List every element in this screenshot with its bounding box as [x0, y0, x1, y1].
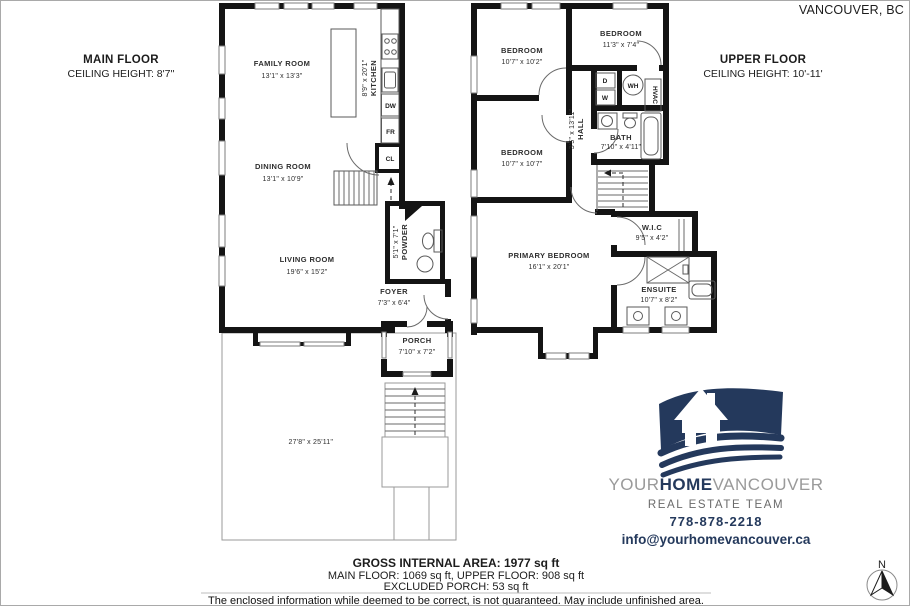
- bedroom2-label: BEDROOM: [600, 29, 642, 38]
- powder-fixtures: [417, 230, 442, 272]
- porch-door-arc: [407, 307, 427, 327]
- upper-floor-title: UPPER FLOOR: [720, 54, 807, 66]
- brand-tagline: REAL ESTATE TEAM: [648, 499, 784, 511]
- floor-plan-page: VANCOUVER, BC MAIN FLOOR CEILING HEIGHT:…: [0, 0, 910, 606]
- gross-area: GROSS INTERNAL AREA: 1977 sq ft: [353, 556, 560, 570]
- primary-bedroom-dims: 16'1" x 20'1": [529, 264, 570, 271]
- kitchen-island: [331, 29, 356, 117]
- dining-room-dims: 13'1" x 10'9": [263, 176, 304, 183]
- area-summary: GROSS INTERNAL AREA: 1977 sq ft MAIN FLO…: [328, 556, 584, 593]
- upper-floor-plan: D W WH HVAC: [471, 3, 717, 359]
- kitchen-dims: 8'9" x 20'1": [362, 59, 369, 96]
- stove-icon: [382, 34, 398, 59]
- hvac-label: HVAC: [651, 86, 658, 104]
- upper-floor-ceiling: CEILING HEIGHT: 10'-11': [703, 68, 822, 80]
- kitchen-label: KITCHEN: [369, 60, 378, 96]
- living-room-dims: 19'6" x 15'2": [287, 269, 328, 276]
- brand-email: info@yourhomevancouver.ca: [622, 532, 811, 547]
- powder-label: POWDER: [400, 224, 409, 260]
- foyer-label: FOYER: [380, 287, 408, 296]
- porch-dims: 7'10" x 7'2": [399, 349, 436, 356]
- wic-dims: 9'5" x 4'2": [636, 235, 669, 242]
- washer-label: W: [602, 95, 609, 102]
- brand-phone: 778-878-2218: [670, 514, 763, 529]
- ensuite-label: ENSUITE: [641, 285, 676, 294]
- main-floor-ceiling: CEILING HEIGHT: 8'7'': [68, 68, 175, 80]
- stairs-door-arc: [347, 143, 379, 175]
- floor-plan-canvas: VANCOUVER, BC MAIN FLOOR CEILING HEIGHT:…: [1, 1, 910, 606]
- hall-label: HALL: [576, 118, 585, 140]
- bedroom2-dims: 11'3" x 7'4": [603, 42, 640, 49]
- bedroom3-dims: 10'7" x 10'7": [502, 161, 543, 168]
- bath-dims: 7'10" x 4'11": [601, 144, 642, 151]
- wic-label: W.I.C: [642, 223, 663, 232]
- dryer-label: D: [603, 78, 608, 85]
- round-sink-icon: [417, 256, 433, 272]
- bedroom3-label: BEDROOM: [501, 148, 543, 157]
- upper-stairs: [597, 165, 648, 211]
- brand-name: YOURHOMEVANCOUVER: [608, 475, 823, 494]
- brand-logo: YOURHOMEVANCOUVER REAL ESTATE TEAM 778-8…: [608, 388, 823, 547]
- shower-icon: [647, 257, 689, 283]
- powder-dims: 5'1" x 7'1": [393, 225, 400, 258]
- yard-dims: 27'8" x 25'11'': [289, 439, 334, 446]
- main-floor-title: MAIN FLOOR: [83, 54, 159, 66]
- bath-label: BATH: [610, 133, 632, 142]
- family-room-dims: 13'1" x 13'3": [262, 73, 303, 80]
- flag-logo-icon: [659, 388, 783, 475]
- fridge-label: FR: [386, 129, 395, 136]
- sink-icon: [382, 68, 398, 92]
- stairs-up-arrow: [388, 177, 395, 185]
- closet-label: CL: [386, 156, 395, 163]
- steps-up-arrow: [412, 387, 419, 395]
- compass-icon: N: [867, 559, 897, 600]
- water-heater-label: WH: [628, 83, 639, 90]
- family-room-label: FAMILY ROOM: [254, 59, 311, 68]
- primary-bedroom-label: PRIMARY BEDROOM: [508, 251, 589, 260]
- dishwasher-label: DW: [385, 103, 397, 110]
- upper-floor-walls: [471, 3, 717, 359]
- exterior-steps: [382, 383, 448, 487]
- porch-label: PORCH: [402, 336, 431, 345]
- main-floor-plan: DW FR CL: [219, 3, 456, 540]
- bedroom1-dims: 10'7" x 10'2": [502, 59, 543, 66]
- ensuite-dims: 10'7" x 8'2": [641, 297, 678, 304]
- dining-room-label: DINING ROOM: [255, 162, 311, 171]
- location-label: VANCOUVER, BC: [799, 3, 904, 17]
- main-stairs: [334, 143, 395, 205]
- bedroom1-label: BEDROOM: [501, 46, 543, 55]
- ensuite-sink-icons: [627, 307, 687, 325]
- disclaimer-text: The enclosed information while deemed to…: [208, 595, 704, 606]
- compass-n-label: N: [878, 559, 886, 571]
- upper-floor-windows: [471, 3, 689, 359]
- foyer-dims: 7'3" x 6'4": [378, 300, 411, 307]
- bath-toilet-icon: [623, 113, 637, 118]
- wic-closet-rods: [679, 219, 684, 251]
- living-room-label: LIVING ROOM: [280, 255, 335, 264]
- excluded-area: EXCLUDED PORCH: 53 sq ft: [384, 581, 529, 593]
- hall-dims: 3'5" x 13'11": [569, 108, 576, 149]
- entry-door-arc: [424, 295, 448, 319]
